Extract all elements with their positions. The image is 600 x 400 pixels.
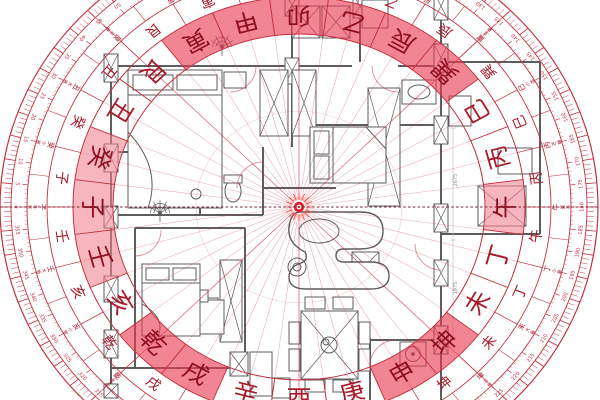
r1-label-卯: 卯	[287, 2, 312, 29]
degree-140: 140	[510, 32, 521, 43]
degree-10: 10	[16, 158, 23, 165]
degree-170: 170	[574, 156, 582, 166]
r1-label-酉: 酉	[287, 386, 312, 400]
r2-label-寅: 寅	[197, 0, 217, 11]
r2-label-巳: 巳	[510, 112, 531, 130]
luopan-floorplan-overlay: 26751975子癸丑艮寅甲卯乙辰巽巳丙午丁未坤申庚酉辛戌乾亥壬子癸丑艮寅甲卯乙…	[0, 0, 600, 400]
r2-label-辰: 辰	[434, 20, 456, 40]
r3-label-寅: 寅	[165, 0, 176, 5]
degree-145: 145	[526, 50, 537, 61]
r1-label-丁: 丁	[481, 242, 515, 271]
degree-185: 185	[578, 225, 585, 235]
degree-5: 5	[13, 182, 19, 186]
degree-15: 15	[21, 135, 29, 143]
r2-label-子: 子	[52, 170, 70, 185]
r2-label-壬: 壬	[52, 228, 70, 243]
degree-165: 165	[568, 133, 577, 144]
degree-190: 190	[574, 248, 582, 258]
degree-330: 330	[48, 333, 59, 344]
degree-215: 215	[526, 353, 537, 364]
degree-220: 220	[510, 371, 521, 382]
degree-25: 25	[38, 92, 47, 100]
r2-label-坤: 坤	[434, 374, 456, 394]
degree-130: 130	[475, 0, 487, 10]
r3-label-辰: 辰	[422, 0, 433, 5]
degree-20: 20	[29, 113, 37, 121]
dimension-label: 2675	[453, 174, 459, 187]
degree-325: 325	[61, 353, 72, 364]
r1-label-未: 未	[459, 286, 497, 320]
degree-350: 350	[16, 248, 24, 258]
degree-345: 345	[21, 270, 30, 281]
degree-210: 210	[539, 333, 550, 344]
r2-label-丁: 丁	[510, 283, 531, 301]
r2-label-戌: 戌	[142, 374, 164, 394]
degree-320: 320	[76, 371, 87, 382]
luopan-canvas: 26751975子癸丑艮寅甲卯乙辰巽巳丙午丁未坤申庚酉辛戌乾亥壬子癸丑艮寅甲卯乙…	[0, 0, 600, 400]
r2-label-丙: 丙	[528, 170, 546, 185]
r2-label-癸: 癸	[67, 112, 88, 130]
r2-label-午: 午	[528, 228, 546, 243]
degree-355: 355	[13, 225, 20, 235]
degree-195: 195	[568, 270, 577, 281]
degree-175: 175	[578, 179, 585, 189]
r2-label-巽: 巽	[478, 61, 500, 81]
r2-label-亥: 亥	[67, 283, 88, 301]
r2-label-艮: 艮	[142, 20, 164, 40]
r2-label-未: 未	[478, 333, 500, 353]
